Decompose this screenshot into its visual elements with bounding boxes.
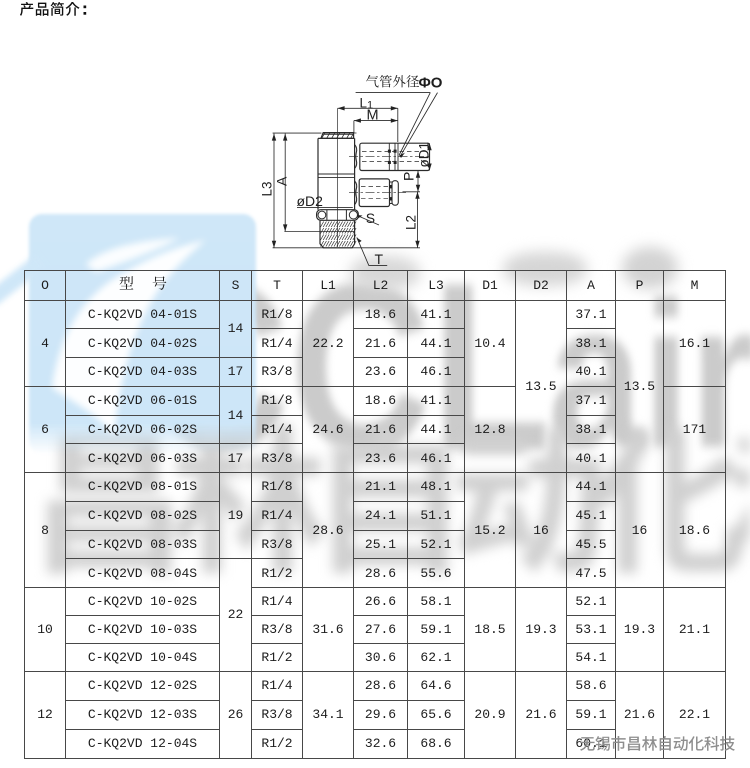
svg-text:S: S — [366, 210, 375, 226]
svg-text:T: T — [375, 251, 384, 267]
svg-text:L3: L3 — [260, 181, 275, 196]
svg-text:øD1: øD1 — [416, 142, 431, 168]
svg-text:L1: L1 — [360, 96, 374, 112]
svg-text:L2: L2 — [404, 215, 419, 230]
svg-text:A: A — [274, 176, 290, 186]
svg-text:M: M — [367, 108, 379, 124]
svg-text:ΦO: ΦO — [419, 75, 443, 92]
svg-text:P: P — [401, 172, 417, 181]
svg-text:øD2: øD2 — [297, 193, 324, 209]
